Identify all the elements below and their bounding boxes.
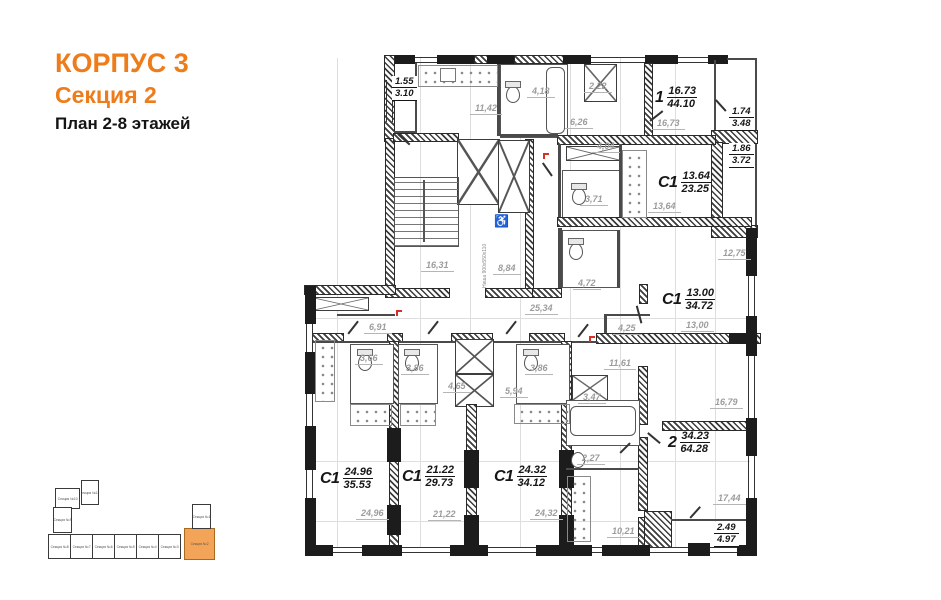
fire-hydrant-mark (396, 310, 402, 316)
kitchen-counter (350, 404, 392, 426)
door-leaf (542, 162, 552, 176)
apartment-type: 1 (655, 89, 663, 107)
wall (533, 289, 561, 297)
room-area: 3,47 (578, 392, 606, 404)
bathtub-icon (570, 406, 636, 436)
stair-divider (423, 180, 425, 242)
bathtub-icon (546, 67, 565, 134)
minimap-section-2-highlighted: Секция №2 (184, 528, 215, 560)
wall (386, 289, 449, 297)
balcony-area: 2.49 (714, 522, 739, 534)
wall (566, 468, 639, 470)
room-area: 11,61 (604, 358, 636, 370)
window (333, 547, 362, 553)
fire-hydrant-mark (589, 336, 595, 342)
wall (464, 450, 479, 488)
room-area: 6,26 (565, 117, 593, 129)
wall (387, 505, 401, 535)
wall (663, 422, 748, 430)
balcony-wall (727, 58, 757, 60)
window (415, 57, 437, 63)
balcony-area-full: 4.97 (714, 534, 739, 546)
minimap-section-11: Секция №11 (81, 480, 99, 505)
wall (362, 545, 402, 556)
wall (617, 230, 620, 288)
room-area: 11,42 (470, 103, 502, 115)
balcony-area-full: 3.48 (729, 118, 754, 130)
minimap-section-label: Секция №8 (50, 545, 68, 548)
room-area: 21,22 (428, 509, 461, 521)
wall (746, 418, 757, 456)
window (650, 547, 688, 553)
wall (712, 143, 722, 228)
toilet-icon (568, 238, 584, 245)
apartment-type: С1 (320, 470, 339, 488)
total-area: 29.73 (425, 477, 455, 489)
room-area: 3,71 (580, 194, 608, 206)
toilet-icon (523, 349, 539, 356)
wall (602, 545, 650, 556)
room-area: 4,18 (527, 86, 555, 98)
room-area: 24,96 (356, 508, 389, 520)
minimap-section-10: Секция №10 (55, 488, 80, 509)
apartment-type: С1 (662, 291, 681, 309)
room-area: 24,32 (530, 508, 563, 520)
window (678, 57, 708, 63)
window (488, 547, 536, 553)
kitchen-counter (514, 404, 570, 424)
wall (639, 438, 647, 510)
apartment-label-c1-2432: С1 24.3234.12 (494, 464, 547, 489)
minimap: Секция №11 Секция №10 Секция №9 Секция №… (45, 477, 240, 565)
minimap-section-7: Секция №7 (70, 534, 93, 559)
minimap-section-label: Секция №5 (116, 545, 134, 548)
wall (305, 498, 316, 556)
wall (712, 131, 757, 143)
living-area: 34.23 (680, 430, 710, 443)
room-area: 13,64 (648, 201, 681, 213)
room-area: 4,04 (592, 141, 620, 153)
window (306, 470, 313, 498)
apartment-label-c1-2122: С1 21.2229.73 (402, 464, 455, 489)
room-area: 3,86 (525, 363, 553, 375)
plan-subtitle: План 2-8 этажей (55, 114, 190, 134)
wheelchair-icon: ♿ (494, 215, 509, 227)
wall (305, 286, 316, 324)
room-area: 10,21 (607, 526, 640, 538)
wall (639, 367, 647, 424)
staircase (394, 177, 459, 247)
total-area: 35.53 (343, 479, 373, 491)
minimap-section-label: Секция №3 (160, 545, 178, 548)
wall (688, 543, 710, 556)
wall (640, 285, 647, 303)
apartment-type: С1 (658, 174, 677, 192)
balcony-railing (313, 297, 369, 311)
room-area: 3,66 (355, 353, 383, 365)
toilet-icon (569, 243, 583, 260)
wall (337, 314, 395, 316)
minimap-section-1: Секция №1 (192, 504, 211, 529)
balcony-area: 1.55 (392, 76, 417, 88)
floorplan-page: КОРПУС 3 Секция 2 План 2-8 этажей ♿ Ниша… (0, 0, 941, 600)
balcony-area: 1.74 (729, 106, 754, 118)
balcony-label-174: 1.74 3.48 (729, 106, 754, 131)
total-area: 64.28 (680, 443, 710, 455)
balcony-area-full: 3.72 (729, 155, 754, 167)
wall (387, 428, 401, 462)
elevator-shaft (498, 140, 530, 213)
wall (708, 55, 728, 64)
elevator-shaft (455, 339, 494, 374)
window (306, 394, 313, 426)
wall (486, 289, 533, 297)
door-leaf (427, 321, 438, 335)
total-area: 34.12 (517, 477, 547, 489)
window (710, 547, 737, 553)
wall (450, 545, 488, 556)
room-area: 8,84 (493, 263, 521, 275)
minimap-section-label: Секция №4 (138, 545, 156, 548)
room-area: 2,22 (584, 81, 612, 93)
wall (746, 316, 757, 356)
balcony-wall (671, 519, 751, 521)
apartment-label-2: 2 34.2364.28 (668, 430, 710, 455)
window (592, 547, 602, 553)
wall (536, 545, 592, 556)
minimap-section-label: Секция №2 (190, 542, 208, 545)
room-area: 4,25 (613, 323, 641, 335)
window (748, 356, 755, 418)
door-leaf (648, 432, 661, 443)
living-area: 13.64 (681, 170, 711, 183)
fire-hydrant-mark (543, 153, 549, 159)
apartment-label-1: 1 16.7344.10 (655, 85, 697, 110)
grid-line (313, 461, 750, 462)
wall (305, 286, 395, 294)
room-area: 16,73 (652, 118, 685, 130)
kitchen-counter (567, 476, 591, 542)
minimap-section-9: Секция №9 (53, 507, 72, 533)
wall (386, 139, 394, 297)
kitchen-counter (315, 340, 335, 402)
wall (563, 55, 591, 64)
minimap-section-label: Секция №10 (58, 497, 78, 500)
living-area: 24.32 (517, 464, 547, 477)
total-area: 23.25 (681, 183, 711, 195)
balcony-area-full: 3.10 (392, 88, 417, 100)
minimap-section-4: Секция №4 (136, 534, 159, 559)
balcony-label-155: 1.55 3.10 (392, 76, 417, 101)
living-area: 21.22 (425, 464, 455, 477)
minimap-section-label: Секция №11 (81, 491, 99, 494)
wall (645, 512, 671, 547)
kitchen-counter (400, 404, 436, 426)
minimap-section-label: Секция №6 (94, 545, 112, 548)
sink-icon (440, 68, 456, 82)
room-area: 5,94 (500, 386, 528, 398)
balcony-label-249: 2.49 4.97 (714, 522, 739, 547)
wall (305, 426, 316, 470)
balcony-area: 1.86 (729, 143, 754, 155)
balcony-label-186: 1.86 3.72 (729, 143, 754, 168)
door-leaf (715, 99, 726, 111)
minimap-section-5: Секция №5 (114, 534, 137, 559)
living-area: 24.96 (343, 466, 373, 479)
balcony-wall (714, 60, 716, 133)
grid-line (313, 318, 757, 319)
toilet-icon (571, 183, 587, 190)
window (748, 276, 755, 316)
room-area: 6,91 (364, 322, 392, 334)
room-area: 16,31 (421, 260, 454, 272)
apartment-type: 2 (668, 434, 676, 452)
toilet-icon (404, 349, 420, 356)
wall (645, 64, 652, 138)
door-leaf (505, 321, 516, 335)
wall (500, 134, 558, 137)
section-title: Секция 2 (55, 82, 157, 109)
room-area: 12,75 (718, 248, 751, 260)
apartment-type: С1 (402, 468, 421, 486)
wall (558, 218, 751, 226)
room-area: 16,79 (710, 397, 743, 409)
room-area: 4,65 (443, 381, 471, 393)
minimap-section-label: Секция №7 (72, 545, 90, 548)
room-area: 25,34 (525, 303, 558, 315)
building-title: КОРПУС 3 (55, 48, 189, 79)
kitchen-counter (622, 150, 647, 218)
room-area: 2,27 (577, 453, 605, 465)
total-area: 34.72 (685, 300, 715, 312)
toilet-icon (506, 86, 520, 103)
window (306, 324, 313, 352)
room-area: 13,00 (681, 320, 714, 332)
kitchen-counter (418, 65, 498, 87)
total-area: 44.10 (667, 98, 697, 110)
apartment-label-c1-2496: С1 24.9635.53 (320, 466, 373, 491)
wall (645, 55, 678, 64)
minimap-section-label: Секция №1 (192, 515, 210, 518)
minimap-section-6: Секция №6 (92, 534, 115, 559)
living-area: 13.00 (685, 287, 715, 300)
grid-line (620, 58, 621, 547)
window (591, 57, 645, 63)
apartment-label-c1-1364: С1 13.6423.25 (658, 170, 711, 195)
living-area: 16.73 (667, 85, 697, 98)
elevator-shaft (457, 139, 500, 205)
window (402, 547, 450, 553)
minimap-section-8: Секция №8 (48, 534, 71, 559)
niche-note: Ниша 900х550х110 (482, 244, 488, 288)
room-area: 17,44 (713, 493, 746, 505)
minimap-section-3: Секция №3 (158, 534, 181, 559)
wall (515, 56, 563, 63)
room-area: 3,86 (401, 363, 429, 375)
wall (558, 136, 715, 144)
room-area: 4,72 (573, 278, 601, 290)
door-leaf (689, 506, 700, 518)
wall (437, 55, 475, 64)
window (748, 456, 755, 498)
apartment-type: С1 (494, 468, 513, 486)
wall (487, 55, 515, 64)
wall (746, 498, 757, 556)
wall (604, 314, 650, 316)
wall (558, 144, 561, 218)
toilet-icon (505, 81, 521, 88)
apartment-label-c1-1300: С1 13.0034.72 (662, 287, 715, 312)
balcony-wall (755, 58, 757, 230)
door-leaf (347, 321, 358, 335)
minimap-section-label: Секция №9 (53, 518, 71, 521)
door-leaf (577, 324, 588, 338)
wall (464, 515, 479, 547)
wall (475, 56, 487, 63)
